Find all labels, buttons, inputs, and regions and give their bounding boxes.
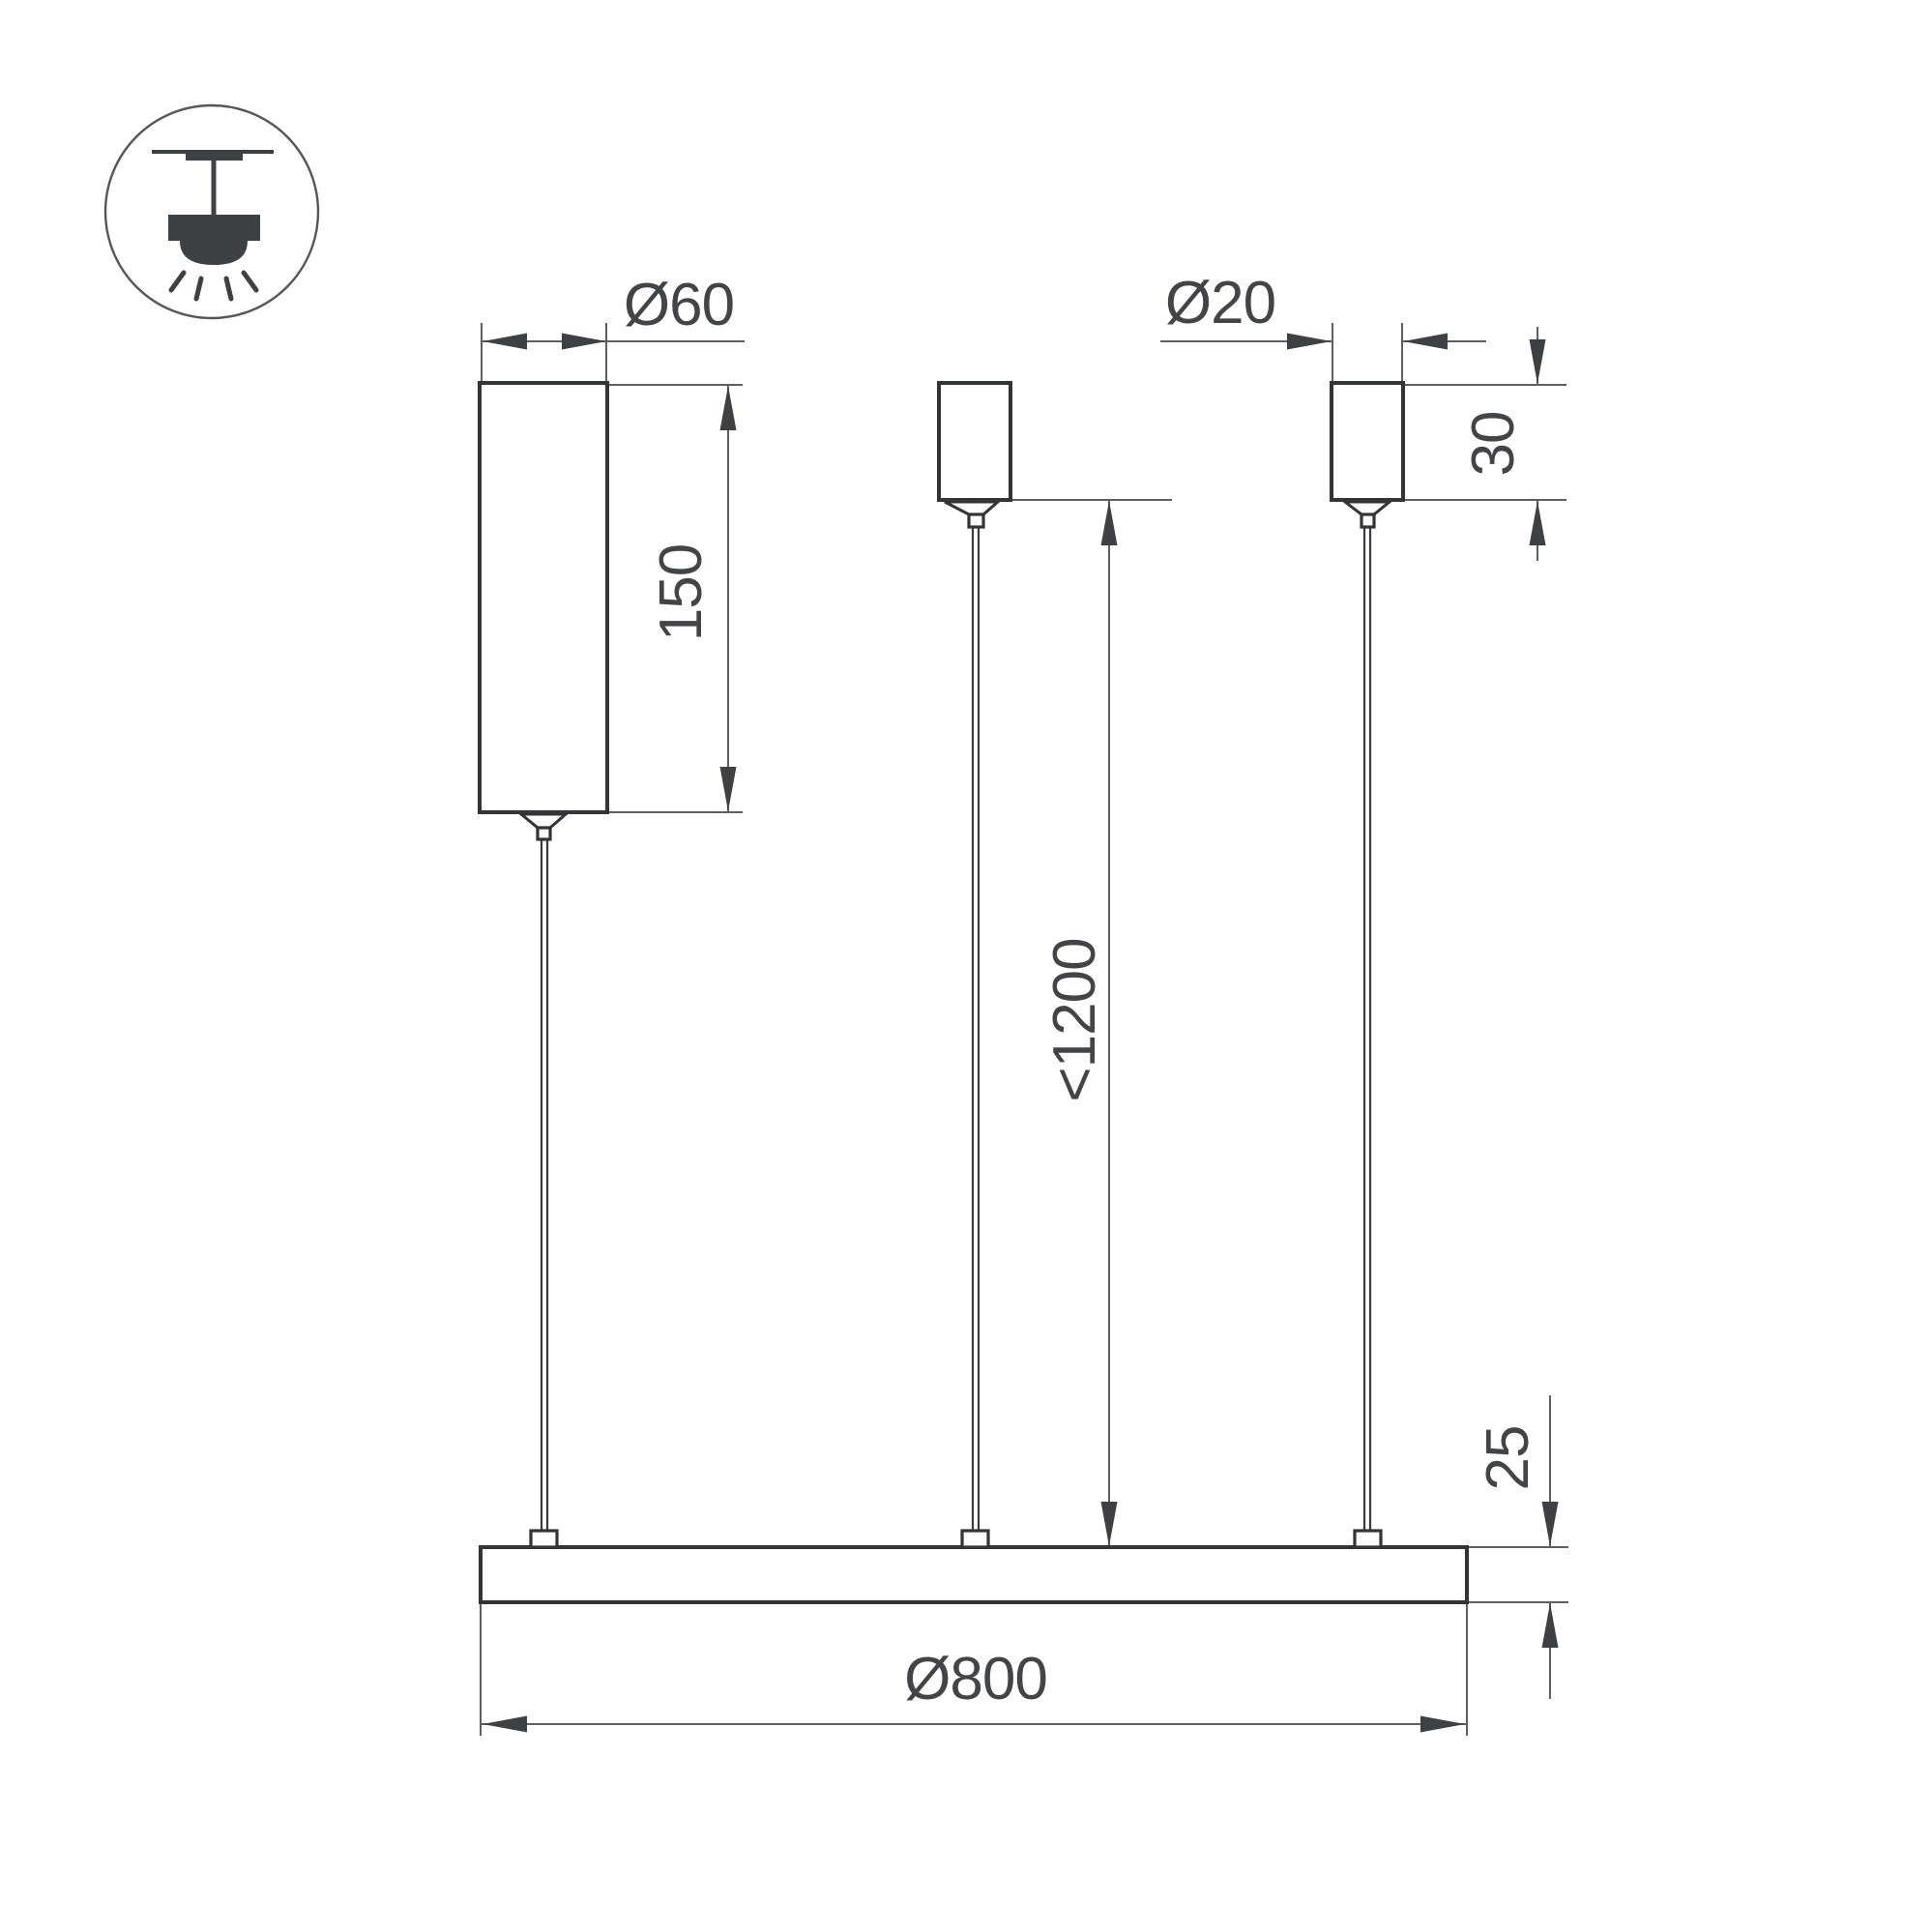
- grip-left: [538, 828, 550, 839]
- icon-ray-4: [244, 273, 256, 290]
- arrow-down: [1101, 1502, 1118, 1546]
- dimension-drawing-canvas: Ø60 150 Ø20 30 <1200: [0, 0, 1932, 1932]
- arrow-down: [720, 767, 737, 811]
- dimension-suspension-length: <1200: [1010, 500, 1172, 1546]
- grip-right: [1361, 514, 1374, 527]
- arrow-up: [1101, 501, 1118, 545]
- icon-ray-2: [196, 278, 201, 299]
- icon-lamp-dome: [180, 241, 248, 265]
- dimension-profile-height: 25: [1469, 1395, 1568, 1699]
- arrow-left: [483, 334, 527, 350]
- arrow-up: [720, 386, 737, 430]
- arrow-down: [1530, 339, 1546, 384]
- dimension-ring-diameter: Ø800: [481, 1604, 1467, 1736]
- icon-ray-1: [171, 273, 184, 290]
- arrow-down: [1542, 1502, 1559, 1546]
- arrow-right: [562, 334, 606, 350]
- luminaire-outline: [480, 383, 1467, 1602]
- bar-fitting-middle: [962, 1531, 988, 1547]
- drawing-svg: Ø60 150 Ø20 30 <1200: [0, 0, 1932, 1932]
- pendant-mount-icon: [105, 105, 318, 318]
- dimension-holder-width: Ø20: [1160, 270, 1486, 383]
- icon-ray-3: [226, 278, 231, 299]
- holder-middle: [939, 383, 1010, 500]
- icon-mount-plate: [186, 154, 243, 161]
- icon-lamp-body: [168, 215, 260, 241]
- dimension-canopy-width: Ø60: [482, 272, 745, 383]
- arrow-right: [1287, 334, 1332, 350]
- dim-label-profile-height: 25: [1475, 1426, 1541, 1491]
- arrow-left: [483, 1716, 527, 1733]
- cone-right: [1345, 502, 1390, 514]
- dim-label-canopy-width: Ø60: [624, 272, 734, 338]
- grip-middle: [969, 514, 983, 527]
- arrow-right: [1420, 1716, 1465, 1733]
- driver-box: [480, 383, 607, 812]
- dim-label-suspension-length: <1200: [1041, 938, 1108, 1101]
- holder-right: [1332, 383, 1403, 500]
- bar-fitting-right: [1355, 1531, 1381, 1547]
- dim-label-canopy-height: 150: [648, 544, 715, 641]
- arrow-left: [1403, 334, 1448, 350]
- dim-label-holder-width: Ø20: [1165, 270, 1275, 337]
- light-bar: [481, 1547, 1467, 1602]
- dim-label-holder-height: 30: [1460, 412, 1527, 477]
- bar-fitting-left: [531, 1531, 557, 1547]
- arrow-up: [1530, 501, 1546, 545]
- arrow-up: [1542, 1603, 1559, 1648]
- dimension-canopy-height: 150: [607, 385, 743, 812]
- cone-left: [521, 814, 566, 828]
- dimension-holder-height: 30: [1404, 327, 1566, 561]
- cone-middle: [945, 502, 998, 514]
- dim-label-ring-diameter: Ø800: [904, 1646, 1047, 1712]
